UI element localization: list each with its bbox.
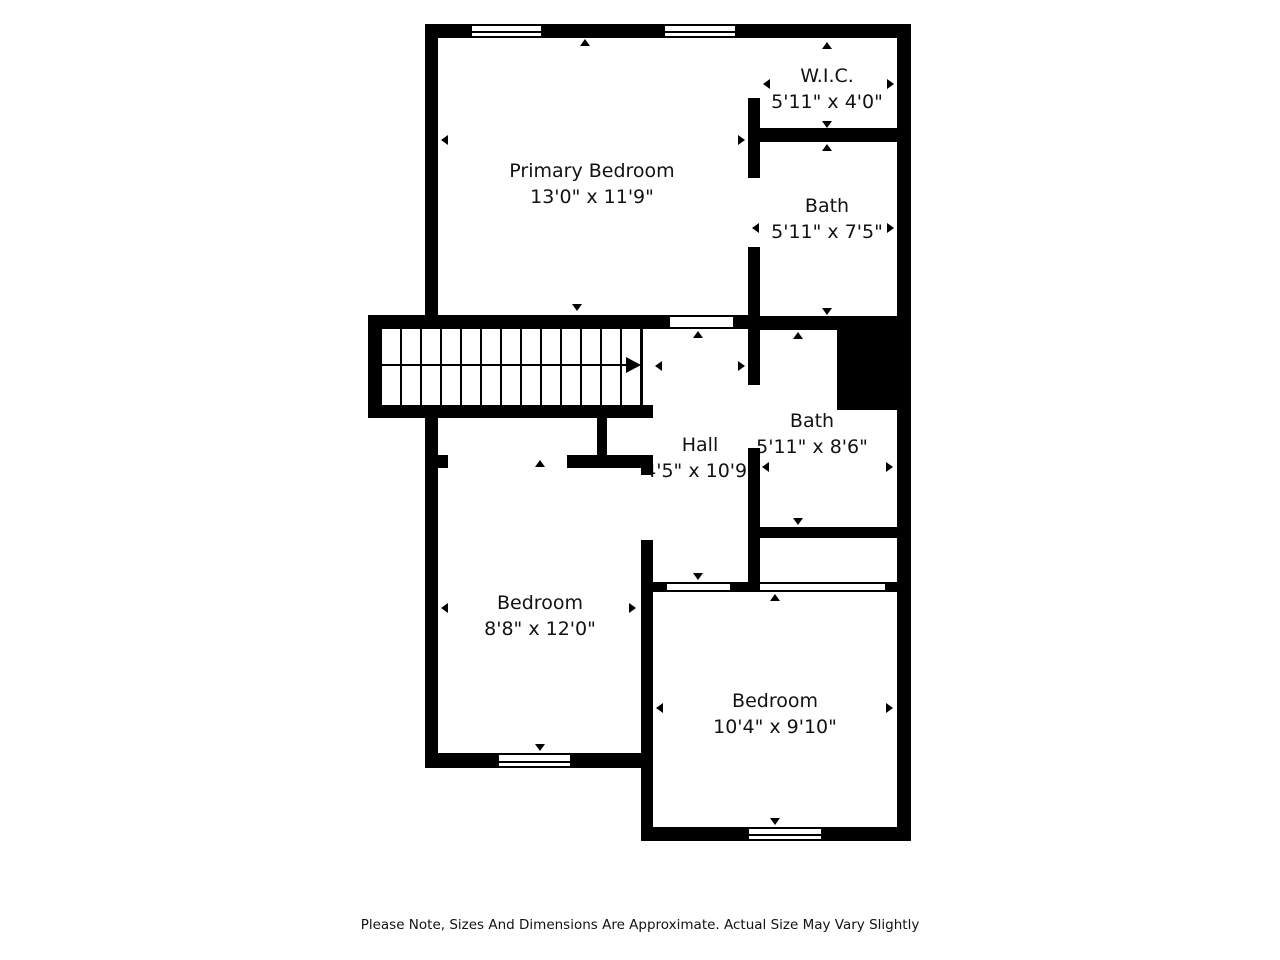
bath-lower-label: Bath 5'11" x 8'6" [756, 408, 868, 460]
room-name: W.I.C. [771, 63, 883, 89]
window-pane [665, 31, 735, 33]
dim-arrow-up-icon [793, 332, 803, 339]
wall-hall-bottom-a [641, 582, 667, 592]
opening-hall-to-bedroom [667, 582, 730, 592]
dim-arrow-right-icon [629, 603, 636, 613]
window-pane [472, 31, 541, 33]
dim-arrow-up-icon [580, 39, 590, 46]
window-bedroom-right [747, 827, 823, 841]
room-name: Bath [771, 193, 883, 219]
dim-arrow-down-icon [693, 573, 703, 580]
room-name: Bath [756, 408, 868, 434]
dim-arrow-down-icon [770, 818, 780, 825]
dim-arrow-left-icon [441, 135, 448, 145]
floor-plan: Primary Bedroom 13'0" x 11'9" W.I.C. 5'1… [0, 0, 1280, 960]
wall-left-lower [425, 418, 438, 768]
room-name: Hall [644, 432, 756, 458]
wall-left-upper [425, 24, 438, 329]
room-name: Primary Bedroom [509, 158, 674, 184]
room-dims: 5'11" x 4'0" [771, 89, 883, 115]
dim-arrow-down-icon [822, 308, 832, 315]
wall-bedroom-left-stub [438, 455, 448, 468]
wall-right [897, 24, 911, 841]
window-top-left [470, 24, 543, 38]
room-dims: 13'0" x 11'9" [509, 184, 674, 210]
opening-hall-to-primary [670, 315, 733, 329]
bedroom-right-label: Bedroom 10'4" x 9'10" [713, 688, 837, 740]
dim-arrow-left-icon [441, 603, 448, 613]
wall-hall-bottom-b [730, 582, 760, 592]
dim-arrow-up-icon [822, 42, 832, 49]
room-name: Bedroom [713, 688, 837, 714]
wall-bath-upper-left [748, 247, 760, 385]
staircase [382, 328, 643, 405]
dim-arrow-down-icon [572, 304, 582, 311]
dim-arrow-right-icon [738, 135, 745, 145]
wic-label: W.I.C. 5'11" x 4'0" [771, 63, 883, 115]
dim-arrow-left-icon [762, 462, 769, 472]
dim-arrow-left-icon [656, 703, 663, 713]
dim-arrow-right-icon [886, 703, 893, 713]
dim-arrow-right-icon [886, 462, 893, 472]
dim-arrow-down-icon [793, 518, 803, 525]
room-dims: 4'5" x 10'9" [644, 458, 756, 484]
opening-nook-to-bedroom [760, 582, 885, 592]
window-pane [749, 834, 821, 836]
primary-bedroom-label: Primary Bedroom 13'0" x 11'9" [509, 158, 674, 210]
disclaimer-note: Please Note, Sizes And Dimensions Are Ap… [0, 917, 1280, 933]
dim-arrow-down-icon [822, 121, 832, 128]
window-bedroom-left [497, 753, 572, 768]
stair-direction-arrow-icon [626, 357, 641, 373]
room-dims: 10'4" x 9'10" [713, 714, 837, 740]
shaft-block [837, 330, 898, 410]
wall-bath-upper-bottom [748, 316, 911, 330]
wall-wic-bath-divider [760, 128, 911, 142]
dim-arrow-left-icon [763, 79, 770, 89]
dim-arrow-right-icon [887, 223, 894, 233]
stair-direction-line [382, 364, 626, 366]
dim-arrow-up-icon [535, 460, 545, 467]
wall-bath-lower-left [748, 448, 760, 592]
dim-arrow-left-icon [655, 361, 662, 371]
dim-arrow-down-icon [535, 744, 545, 751]
wall-wic-left [748, 98, 760, 178]
wall-bath-lower-bottom [760, 527, 911, 538]
room-dims: 5'11" x 8'6" [756, 434, 868, 460]
wall-stair-bottom [368, 405, 653, 418]
dim-arrow-left-icon [752, 223, 759, 233]
dim-arrow-right-icon [738, 361, 745, 371]
window-pane [499, 761, 570, 763]
bedroom-left-label: Bedroom 8'8" x 12'0" [484, 590, 596, 642]
wall-stair-top [368, 315, 670, 329]
bath-upper-label: Bath 5'11" x 7'5" [771, 193, 883, 245]
room-dims: 5'11" x 7'5" [771, 219, 883, 245]
dim-arrow-up-icon [693, 331, 703, 338]
window-top-right [663, 24, 737, 38]
wall-stair-left [368, 315, 382, 418]
room-name: Bedroom [484, 590, 596, 616]
wall-bedroom-right-left [641, 592, 653, 841]
wall-hall-left-a [641, 455, 653, 475]
wall-closet-divider [597, 405, 607, 462]
wall-nook-bottom [885, 582, 911, 592]
dim-arrow-up-icon [770, 594, 780, 601]
dim-arrow-right-icon [887, 79, 894, 89]
hall-label: Hall 4'5" x 10'9" [644, 432, 756, 484]
room-dims: 8'8" x 12'0" [484, 616, 596, 642]
dim-arrow-up-icon [822, 144, 832, 151]
